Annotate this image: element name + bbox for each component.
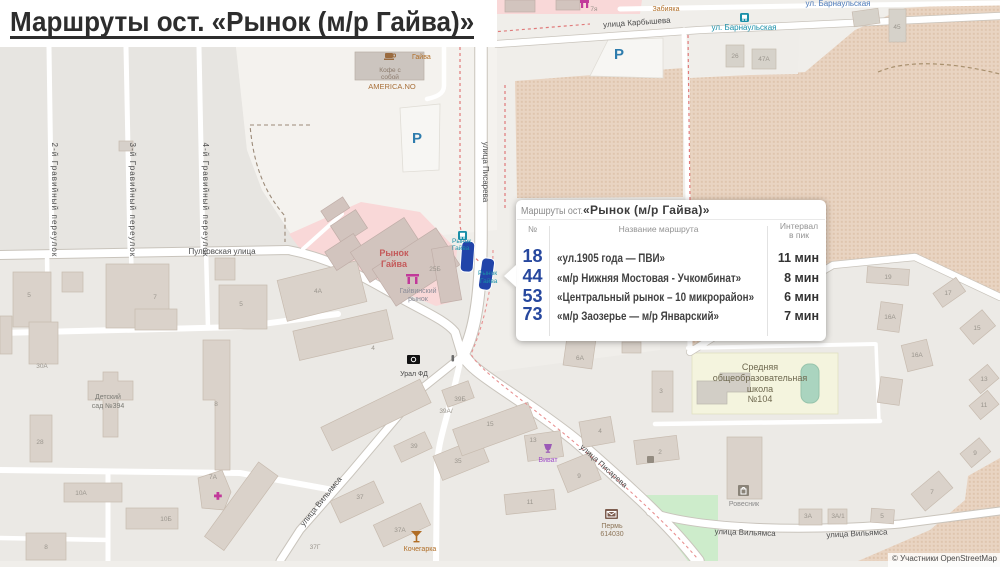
svg-text:26: 26 (731, 53, 739, 60)
svg-text:30А: 30А (36, 363, 48, 370)
svg-text:4-й Гравийный переулок: 4-й Гравийный переулок (201, 143, 210, 258)
svg-text:39А/: 39А/ (439, 408, 453, 415)
svg-text:P: P (614, 46, 624, 63)
svg-text:13: 13 (529, 437, 537, 444)
svg-text:Средняя: Средняя (742, 362, 778, 372)
svg-text:Кофе с: Кофе с (379, 67, 401, 74)
svg-text:общеобразовательная: общеобразовательная (713, 373, 808, 383)
svg-text:8: 8 (214, 401, 218, 408)
svg-text:7: 7 (153, 294, 157, 301)
svg-text:7: 7 (930, 489, 934, 496)
svg-text:10Б: 10Б (160, 516, 172, 523)
svg-text:37: 37 (356, 494, 364, 501)
svg-text:2-й Гравийный переулок: 2-й Гравийный переулок (50, 143, 59, 258)
svg-text:собой: собой (381, 73, 399, 81)
svg-text:4: 4 (598, 428, 602, 435)
svg-text:45: 45 (893, 24, 901, 31)
svg-text:Гайва: Гайва (412, 53, 431, 61)
svg-text:Гайва: Гайва (452, 244, 470, 252)
svg-text:сад №394: сад №394 (92, 403, 125, 410)
svg-text:6А: 6А (576, 355, 585, 362)
svg-text:Пермь: Пермь (601, 523, 623, 530)
svg-text:37Г: 37Г (310, 544, 321, 551)
svg-text:Кочегарка: Кочегарка (404, 546, 437, 553)
svg-text:28: 28 (36, 439, 44, 446)
svg-text:16А: 16А (884, 314, 896, 321)
svg-text:13: 13 (980, 376, 988, 383)
svg-text:5: 5 (27, 292, 31, 299)
svg-text:Урал ФД: Урал ФД (400, 371, 428, 378)
svg-text:39Б: 39Б (454, 396, 466, 403)
svg-text:AMERICA.NO: AMERICA.NO (368, 82, 416, 91)
svg-text:№104: №104 (748, 394, 773, 404)
svg-text:15: 15 (486, 421, 494, 428)
svg-text:3А: 3А (804, 513, 813, 520)
svg-text:школа: школа (747, 384, 773, 394)
svg-text:рынок: рынок (408, 296, 429, 303)
svg-text:9: 9 (577, 473, 581, 480)
svg-text:11: 11 (981, 402, 988, 409)
svg-text:Забияка: Забияка (653, 5, 680, 13)
svg-text:16А: 16А (911, 352, 923, 359)
svg-text:2: 2 (658, 449, 662, 456)
svg-text:3: 3 (659, 388, 663, 395)
svg-text:11: 11 (527, 499, 534, 506)
svg-text:ул. Барнаульская: ул. Барнаульская (806, 0, 871, 8)
svg-text:3А/1: 3А/1 (831, 513, 845, 520)
svg-text:Гайва: Гайва (381, 259, 408, 269)
svg-text:Пулковская улица: Пулковская улица (188, 247, 256, 256)
svg-text:Рынок: Рынок (452, 238, 471, 245)
svg-text:19: 19 (884, 274, 892, 281)
svg-text:7А: 7А (209, 474, 218, 481)
svg-text:47А: 47А (758, 56, 770, 63)
svg-text:37А: 37А (394, 527, 406, 534)
svg-text:3-й Гравийный переулок: 3-й Гравийный переулок (128, 143, 137, 258)
svg-text:Рынок: Рынок (379, 248, 409, 258)
svg-text:5: 5 (880, 513, 884, 520)
svg-text:улица Писарева: улица Писарева (481, 142, 490, 203)
svg-text:9: 9 (973, 450, 977, 457)
svg-text:25Б: 25Б (429, 266, 441, 273)
svg-text:17: 17 (944, 290, 952, 297)
svg-text:Детский: Детский (95, 393, 121, 401)
svg-text:4: 4 (371, 345, 375, 352)
svg-text:614030: 614030 (600, 531, 623, 538)
svg-text:Виват: Виват (538, 457, 558, 464)
svg-text:7я: 7я (590, 6, 598, 13)
svg-text:P: P (412, 130, 422, 147)
svg-text:10А: 10А (75, 490, 87, 497)
svg-text:Ровесник: Ровесник (729, 501, 760, 508)
svg-text:15: 15 (973, 325, 981, 332)
svg-text:8: 8 (44, 544, 48, 551)
svg-text:Гайва: Гайва (480, 277, 498, 285)
svg-text:Гайвинский: Гайвинский (399, 287, 436, 295)
svg-text:ул. Барнаульская: ул. Барнаульская (712, 23, 777, 32)
svg-text:Рынок: Рынок (478, 270, 497, 277)
svg-text:39: 39 (410, 443, 418, 450)
svg-text:4А: 4А (314, 288, 323, 295)
svg-text:5: 5 (239, 301, 243, 308)
svg-text:35: 35 (454, 458, 462, 465)
